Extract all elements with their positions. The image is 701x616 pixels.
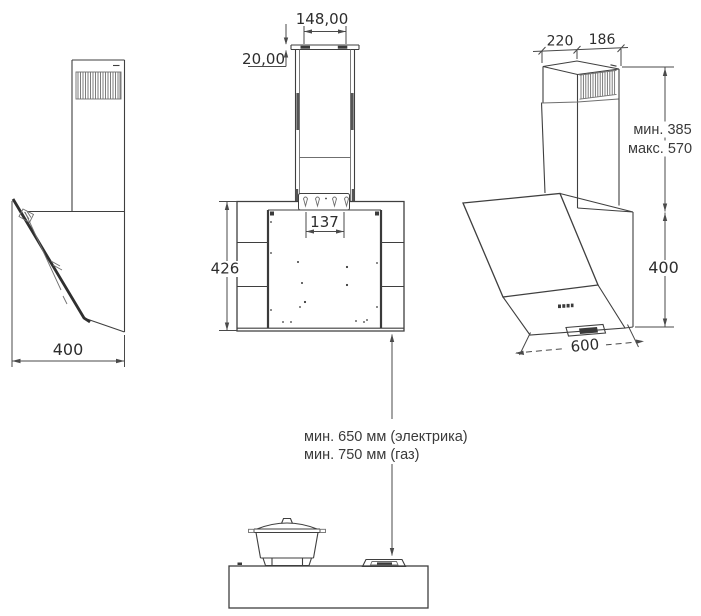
dim-chimney-top-width: 148,00 xyxy=(296,10,349,28)
lower-front-panel xyxy=(503,285,625,335)
clearance-gas-label: мин. 750 мм (газ) xyxy=(304,447,420,463)
arrow-left-icon xyxy=(12,359,21,363)
burner-left-icon xyxy=(263,558,312,566)
chimney-seam-mark-right xyxy=(611,65,617,66)
vent-grille-right-icon xyxy=(580,70,617,99)
installation-clearance: мин. 650 мм (электрика) мин. 750 мм (газ… xyxy=(304,334,468,556)
dim-body-depth: 400 xyxy=(53,340,84,359)
pot-icon xyxy=(249,519,326,559)
width-dimension-label-group: 600 xyxy=(563,335,607,357)
chimney-height-dimension xyxy=(622,67,674,212)
dim-chimney-depth-front: 220 xyxy=(547,34,574,50)
left-side-view: 400 xyxy=(12,60,125,367)
dim-chimney-depth-back: 186 xyxy=(589,32,616,48)
glass-panel-inner-edge xyxy=(25,212,67,304)
vent-grille-icon xyxy=(78,72,120,99)
glass-front-panel xyxy=(463,194,598,298)
dimension-drawing-svg: 400 xyxy=(0,0,701,616)
dim-chimney-height-min: мин. 385 xyxy=(633,122,691,138)
panel-corner-mark-right xyxy=(375,212,379,216)
counter-outline xyxy=(229,566,428,608)
cooktop-illustration xyxy=(229,519,428,609)
dim-chimney-height-max: макс. 570 xyxy=(628,141,692,157)
body-bottom-edge xyxy=(84,318,125,332)
body-top-and-back-edges xyxy=(560,194,633,329)
hood-installation-drawing: 400 xyxy=(0,0,701,616)
dim-body-height-right: 400 xyxy=(648,258,679,277)
right-perspective-view: 220 186 мин. 385 макс. 570 400 600 xyxy=(463,32,696,356)
dim-body-height-front: 426 xyxy=(211,260,240,278)
dim-mounting-hole-spacing: 137 xyxy=(310,213,339,231)
bracket-slot-left xyxy=(301,46,311,49)
mounting-bracket xyxy=(299,194,350,211)
chimney-outer-edges xyxy=(296,50,355,202)
dim-bracket-height: 20,00 xyxy=(242,50,285,68)
chimney-telescopic-marks xyxy=(297,93,353,202)
bracket-center-mark xyxy=(325,198,327,200)
glass-panel-edge xyxy=(13,199,90,322)
top-width-dimension xyxy=(304,26,346,44)
side-glass-section-lines xyxy=(237,243,404,287)
front-view: 148,00 20,00 137 426 xyxy=(209,10,404,331)
counter-knob xyxy=(238,563,243,566)
chimney-outline xyxy=(72,60,125,332)
panel-corner-mark-left xyxy=(270,212,274,216)
bracket-slot-right xyxy=(338,46,348,49)
arrow-right-icon xyxy=(116,359,125,363)
chimney-depth-dimension xyxy=(533,48,628,67)
brand-logo xyxy=(558,304,574,309)
bottom-vent-opening xyxy=(579,327,598,334)
chimney-telescopic-joint xyxy=(542,99,619,103)
panel-screw-holes xyxy=(270,221,378,323)
dim-body-width: 600 xyxy=(570,335,600,356)
clearance-electric-label: мин. 650 мм (электрика) xyxy=(304,429,468,445)
chimney-inner-edges xyxy=(300,50,351,202)
